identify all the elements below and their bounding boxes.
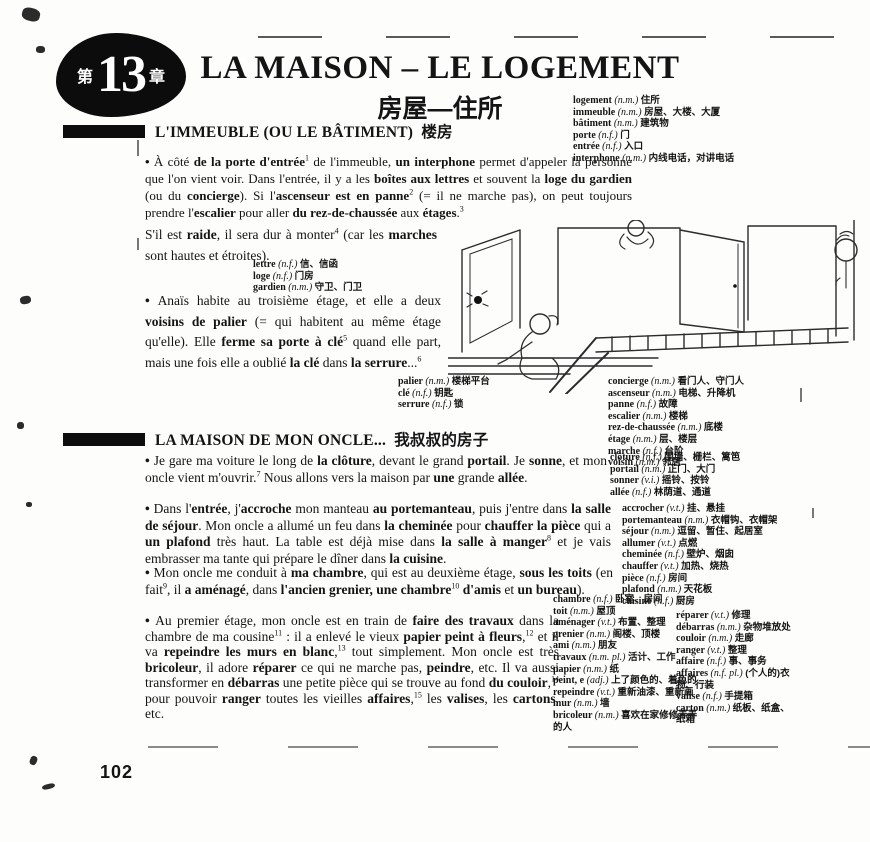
vocab-gender: (n.m.) (574, 698, 600, 709)
vocab-gloss: 走廊 (735, 633, 754, 644)
vocab-gender: (n.m.) (678, 422, 704, 433)
vocab-gender: (n.m.) (706, 703, 732, 714)
vocab-word: logement (573, 95, 614, 106)
vocab-gloss: 整理 (728, 645, 747, 656)
vocab-word: travaux (553, 652, 589, 663)
vocab-gloss: 纸 (610, 664, 620, 675)
heading-cn: 楼房 (421, 124, 452, 141)
text-segment: la cheminée (384, 518, 452, 533)
text-segment: ranger (222, 691, 261, 706)
text-segment: et souvent la (469, 171, 544, 186)
vocab-word: panne (608, 399, 637, 410)
vocab-entry: accrocher (v.t.) 挂、悬挂 (622, 503, 862, 515)
vocab-entry: serrure (n.f.) 锁 (398, 399, 573, 411)
text-segment: escalier (194, 205, 236, 220)
text-segment: ). Si l' (240, 188, 276, 203)
vocab-word: palier (398, 376, 425, 387)
vocab-word: sonner (610, 475, 641, 486)
text-segment: une petite pièce qui se trouve au fond (279, 675, 488, 690)
vocab-entry: entrée (n.f.) 入口 (573, 141, 865, 153)
text-segment: peindre (427, 660, 471, 675)
vocab-gender: (n.f.) (642, 452, 664, 463)
vocab-word: portemanteau (622, 515, 685, 526)
vocab-word: ascenseur (608, 388, 652, 399)
vocab-gender: (n.m.) (708, 633, 734, 644)
scan-noise (36, 46, 45, 53)
vocab-entry: concierge (n.m.) 看门人、守门人 (608, 376, 868, 388)
vocab-gloss: 逗留、暂住、起居室 (677, 526, 763, 537)
vocab-gender: (n.f.) (412, 388, 434, 399)
page-bottom-edge-line (148, 746, 870, 748)
vocab-entry: lettre (n.f.) 信、信函 (253, 259, 438, 271)
vocab-word: allée (610, 487, 632, 498)
text-segment: la salle à manger (441, 534, 547, 549)
vocab-entry: portail (n.m.) 正门、大门 (610, 464, 868, 476)
vocab-entry: réparer (v.t.) 修理 (676, 610, 796, 622)
vocab-gloss: 门房 (295, 271, 314, 282)
vocab-gloss: 层、楼层 (659, 434, 697, 445)
vocab-word: rez-de-chaussée (608, 422, 678, 433)
vocab-word: peint, e (553, 675, 587, 686)
vocab-gloss: 事、事务 (729, 656, 767, 667)
text-segment: . (443, 551, 446, 566)
vocab-gloss: 点燃 (678, 538, 697, 549)
vocab-entry: ranger (v.t.) 整理 (676, 645, 796, 657)
vocab-word: couloir (676, 633, 708, 644)
vocab-gloss: 墙 (600, 698, 610, 709)
vocab-entry: chambre (n.f.) 卧室、房间 (553, 594, 705, 606)
text-segment: affaires (367, 691, 410, 706)
text-segment: très haut. La table est déjà mise dans (211, 534, 442, 549)
vocab-gender: (n.m.) (685, 515, 711, 526)
vocab-gloss: 锁 (454, 399, 464, 410)
vocab-word: pièce (622, 573, 646, 584)
vocab-gloss: 林荫道、通道 (654, 487, 711, 498)
vocab-gender: (n.m.) (651, 526, 677, 537)
vocab-word: affaires (676, 668, 711, 679)
vocab-gender: (n.f.) (602, 141, 624, 152)
text-segment: faire des travaux (412, 613, 513, 628)
vocab-entry: clé (n.f.) 钥匙 (398, 388, 573, 400)
scan-noise (137, 238, 139, 250)
vocab-word: débarras (676, 622, 717, 633)
text-segment: pour aller (236, 205, 293, 220)
text-segment: concierge (187, 188, 240, 203)
chapter-number: 13 (97, 49, 145, 101)
vocab-gender: (adj.) (587, 675, 611, 686)
vocab-gender: (n.f.) (637, 399, 659, 410)
vocab-entry: loge (n.f.) 门房 (253, 271, 438, 283)
vocab-gender: (n.f.) (702, 691, 724, 702)
vocab-gloss: 入口 (624, 141, 643, 152)
text-segment: ferme sa porte à clé (221, 334, 343, 349)
vocab-gender: (n.m.) (614, 118, 640, 129)
vocab-gloss: 活计、工作 (628, 652, 676, 663)
vocab-gender: (n.m.) (652, 388, 678, 399)
text-segment: les (422, 691, 447, 706)
vocab-gender: (v.t.) (598, 617, 619, 628)
vocab-gloss: 围墙、栅栏、篱笆 (664, 452, 740, 463)
paragraph-anais: • Anaïs habite au troisième étage, et el… (145, 291, 441, 373)
vocab-gender: (v.t.) (707, 645, 728, 656)
text-segment: d'amis (463, 582, 501, 597)
text-segment: (car les (339, 227, 389, 242)
vocab-gloss: 手提箱 (724, 691, 753, 702)
vocab-word: aménager (553, 617, 598, 628)
text-segment: mon manteau (292, 501, 373, 516)
text-segment: du couloir (489, 675, 548, 690)
vocab-entry: affaire (n.f.) 事、事务 (676, 656, 796, 668)
vocab-entry: panne (n.f.) 故障 (608, 399, 868, 411)
text-segment: , j' (227, 501, 240, 516)
vocab-gender: (n.f.) (593, 594, 615, 605)
vocab-gloss: 电梯、升降机 (678, 388, 735, 399)
scan-noise (17, 422, 24, 429)
text-segment: a aménagé (185, 582, 246, 597)
text-segment: sonne (529, 453, 562, 468)
text-segment: . Je (506, 453, 529, 468)
text-segment: : il a enlevé le vieux (282, 629, 403, 644)
vocab-word: entrée (573, 141, 602, 152)
text-segment: • (145, 501, 154, 516)
vocab-word: chambre (553, 594, 593, 605)
heading-fr: LA MAISON DE MON ONCLE... (155, 432, 386, 449)
vocab-list-accrocher: accrocher (v.t.) 挂、悬挂portemanteau (n.m.)… (622, 503, 862, 607)
vocab-entry: ascenseur (n.m.) 电梯、升降机 (608, 388, 868, 400)
text-segment: toutes les vieilles (261, 691, 367, 706)
text-segment: aux (397, 205, 422, 220)
text-segment: • (145, 154, 154, 169)
vocab-gloss: 看门人、守门人 (677, 376, 744, 387)
vocab-gloss: 杂物堆放处 (743, 622, 791, 633)
text-segment: ce qui ne marche pas, (297, 660, 427, 675)
vocab-word: chauffer (622, 561, 660, 572)
vocab-gender: (v.i.) (641, 475, 662, 486)
heading-bar (63, 125, 145, 138)
text-segment: ... (407, 355, 417, 370)
vocab-word: clôture (610, 452, 642, 463)
text-segment: (ou du (145, 188, 187, 203)
vocab-gender: (v.t.) (711, 610, 732, 621)
text-segment: ascenseur est en panne (276, 188, 410, 203)
text-segment: loge du gardien (544, 171, 632, 186)
section-heading-immeuble: L'IMMEUBLE (OU LE BÂTIMENT) 楼房 (63, 120, 453, 142)
footnote-ref: 3 (460, 205, 464, 214)
vocab-gloss: 屋顶 (596, 606, 615, 617)
text-segment: voisins de palier (145, 314, 247, 329)
vocab-word: affaire (676, 656, 707, 667)
vocab-entry: étage (n.m.) 层、楼层 (608, 434, 868, 446)
vocab-gender: (n.m.) (570, 606, 596, 617)
vocab-gloss: 阁楼、顶楼 (613, 629, 661, 640)
text-segment: , les (484, 691, 512, 706)
vocab-gloss: 挂、悬挂 (687, 503, 725, 514)
vocab-word: étage (608, 434, 633, 445)
vocab-gender: (n.m.) (641, 464, 667, 475)
vocab-gloss: 修理 (732, 610, 751, 621)
vocab-word: escalier (608, 411, 643, 422)
text-segment: accroche (241, 501, 292, 516)
vocab-gloss: 朋友 (598, 640, 617, 651)
text-segment: Nous allons vers la maison par (261, 470, 434, 485)
vocab-gloss: 布置、整理 (618, 617, 666, 628)
vocab-gloss: 钥匙 (434, 388, 453, 399)
vocab-gender: (n.f.) (707, 656, 729, 667)
text-segment: qui a (580, 518, 611, 533)
vocab-gloss: 壁炉、烟囱 (686, 549, 734, 560)
text-segment: tout simplement. Mon oncle est très (346, 644, 559, 659)
text-segment: de la porte d'entrée (194, 154, 305, 169)
vocab-word: portail (610, 464, 641, 475)
footnote-ref: 11 (274, 628, 282, 637)
scan-noise (21, 6, 42, 23)
vocab-gloss: 故障 (659, 399, 678, 410)
footnote-ref: 15 (414, 690, 422, 699)
chapter-prefix: 第 (77, 63, 93, 87)
vocab-gender: (n.f.) (665, 549, 687, 560)
text-segment: étages (423, 205, 457, 220)
vocab-entry: sonner (v.i.) 摇铃、按铃 (610, 475, 868, 487)
vocab-word: valise (676, 691, 702, 702)
text-segment: . (524, 470, 527, 485)
vocab-gender: (n.m.) (633, 434, 659, 445)
vocab-gender: (n.f.) (273, 271, 295, 282)
vocab-word: concierge (608, 376, 651, 387)
text-segment: grande (454, 470, 497, 485)
scan-noise (137, 140, 139, 156)
text-segment: portail (467, 453, 506, 468)
vocab-gloss: 楼梯平台 (452, 376, 490, 387)
vocab-gender: (v.t.) (660, 561, 681, 572)
vocab-gender: (n.m.) (595, 710, 621, 721)
vocab-gloss: 摇铃、按铃 (662, 475, 710, 486)
vocab-word: lettre (253, 259, 278, 270)
text-segment: débarras (228, 675, 280, 690)
vocab-gender: (n.f.) (598, 130, 620, 141)
text-segment: • (145, 613, 155, 628)
section-heading-maison-oncle: LA MAISON DE MON ONCLE... 我叔叔的房子 (63, 428, 488, 450)
text-segment: • (145, 565, 154, 580)
text-segment: chauffer la pièce (485, 518, 581, 533)
text-segment: entrée (191, 501, 227, 516)
vocab-gloss: 信、信函 (300, 259, 338, 270)
vocab-word: accrocher (622, 503, 666, 514)
text-segment: , puis j'entre dans (472, 501, 571, 516)
vocab-word: loge (253, 271, 273, 282)
vocab-gloss: 门 (620, 130, 630, 141)
text-segment: la serrure (351, 355, 407, 370)
vocab-gender: (n.f.) (632, 487, 654, 498)
vocab-entry: logement (n.m.) 住所 (573, 95, 865, 107)
text-segment: dans (319, 355, 351, 370)
vocab-entry: immeuble (n.m.) 房屋、大楼、大厦 (573, 107, 865, 119)
vocab-gender: (n.m.) (586, 629, 612, 640)
vocab-word: repeindre (553, 687, 597, 698)
staircase-illustration (448, 220, 866, 394)
vocab-entry: allumer (v.t.) 点燃 (622, 538, 862, 550)
vocab-entry: allée (n.f.) 林荫道、通道 (610, 487, 868, 499)
text-segment: allée (498, 470, 524, 485)
vocab-word: mur (553, 698, 574, 709)
vocab-entry: chauffer (v.t.) 加热、烧热 (622, 561, 862, 573)
vocab-entry: valise (n.f.) 手提箱 (676, 691, 796, 703)
vocab-word: immeuble (573, 107, 618, 118)
vocab-gender: (n.m.) (425, 376, 451, 387)
vocab-gloss: 正门、大门 (668, 464, 716, 475)
vocab-gender: (n.f.) (646, 573, 668, 584)
vocab-word: clé (398, 388, 412, 399)
text-segment: , qui est au deuxième étage, (363, 565, 519, 580)
vocab-gloss: 房屋、大楼、大厦 (644, 107, 720, 118)
heading-fr: L'IMMEUBLE (OU LE BÂTIMENT) (155, 124, 413, 141)
vocab-word: allumer (622, 538, 658, 549)
text-segment: valises (447, 691, 485, 706)
vocab-gender: (n.f.) (432, 399, 454, 410)
text-segment: cartons (513, 691, 556, 706)
text-segment: papier peint à fleurs (403, 629, 522, 644)
text-segment: Anaïs habite au troisième étage, et elle… (158, 293, 441, 308)
text-segment: la clôture (317, 453, 372, 468)
text-segment: S'il est (145, 227, 187, 242)
paragraph-interphone: • À côté de la porte d'entrée1 de l'imme… (145, 153, 632, 221)
scan-noise (42, 783, 56, 791)
text-segment: , il sera dur à monter (217, 227, 335, 242)
text-segment: bricoleur (145, 660, 198, 675)
scan-noise (26, 502, 32, 507)
text-segment: et (501, 582, 518, 597)
scan-noise (29, 755, 39, 766)
vocab-gloss: 底楼 (704, 422, 723, 433)
text-segment: sont hautes et étroites). (145, 248, 269, 263)
text-segment: marches (388, 227, 437, 242)
vocab-entry: clôture (n.f.) 围墙、栅栏、篱笆 (610, 452, 868, 464)
vocab-gloss: 内线电话，对讲电话 (649, 153, 735, 164)
text-segment: ma chambre (291, 565, 364, 580)
vocab-gloss: 楼梯 (669, 411, 688, 422)
text-segment: sous les toits (520, 565, 592, 580)
vocab-gloss: 卧室、房间 (615, 594, 663, 605)
vocab-list-palier: palier (n.m.) 楼梯平台clé (n.f.) 钥匙serrure (… (398, 376, 573, 411)
chapter-suffix: 章 (149, 63, 165, 87)
vocab-word: papier (553, 664, 583, 675)
vocab-gender: (n.m.) (651, 376, 677, 387)
footnote-ref: 6 (417, 354, 421, 363)
vocab-gloss: 建筑物 (640, 118, 669, 129)
vocab-entry: palier (n.m.) 楼梯平台 (398, 376, 573, 388)
text-segment: une (433, 470, 454, 485)
vocab-list-lettre: lettre (n.f.) 信、信函loge (n.f.) 门房gardien … (253, 259, 438, 294)
text-segment: pour (452, 518, 484, 533)
vocab-word: ranger (676, 645, 707, 656)
text-segment: la clé (290, 355, 320, 370)
page-title: LA MAISON – LE LOGEMENT (200, 50, 680, 87)
text-segment: un plafond (145, 534, 211, 549)
vocab-entry: débarras (n.m.) 杂物堆放处 (676, 622, 796, 634)
textbook-page: 第 13 章 LA MAISON – LE LOGEMENT 房屋—住所 log… (0, 0, 870, 842)
text-segment: un interphone (396, 154, 476, 169)
vocab-gender: (v.t.) (597, 687, 618, 698)
vocab-entry: bâtiment (n.m.) 建筑物 (573, 118, 865, 130)
vocab-gender: (n.m.) (717, 622, 743, 633)
vocab-entry: rez-de-chaussée (n.m.) 底楼 (608, 422, 868, 434)
vocab-entry: séjour (n.m.) 逗留、暂住、起居室 (622, 526, 862, 538)
vocab-gender: (n.m.) (614, 95, 640, 106)
vocab-word: porte (573, 130, 598, 141)
heading-bar (63, 433, 145, 446)
paragraph-entree: • Dans l'entrée, j'accroche mon manteau … (145, 501, 611, 567)
scan-noise (19, 295, 31, 305)
vocab-gender: (v.t.) (666, 503, 687, 514)
vocab-list-reparer: réparer (v.t.) 修理débarras (n.m.) 杂物堆放处co… (676, 610, 796, 726)
vocab-word: séjour (622, 526, 651, 537)
text-segment: repeindre les murs en blanc (164, 644, 334, 659)
vocab-word: cheminée (622, 549, 665, 560)
text-segment: Au premier étage, mon oncle est en train… (155, 613, 412, 628)
text-segment: boîtes aux lettres (374, 171, 469, 186)
vocab-entry: pièce (n.f.) 房间 (622, 573, 862, 585)
vocab-gender: (n.m. pl.) (589, 652, 628, 663)
vocab-word: bricoleur (553, 710, 595, 721)
text-segment: pour pouvoir (145, 691, 222, 706)
text-segment: au portemanteau (373, 501, 472, 516)
text-segment: , dans (246, 582, 281, 597)
paragraph-cloture: • Je gare ma voiture le long de la clôtu… (145, 453, 607, 486)
vocab-gloss: 加热、烧热 (681, 561, 729, 572)
vocab-gender: (n.f.) (278, 259, 300, 270)
vocab-entry: porte (n.f.) 门 (573, 130, 865, 142)
vocab-gender: (n.m.) (583, 664, 609, 675)
text-segment: , devant le grand (372, 453, 468, 468)
text-segment: la cuisine (389, 551, 443, 566)
text-segment: raide (187, 227, 217, 242)
text-segment: Dans l' (154, 501, 192, 516)
vocab-word: serrure (398, 399, 432, 410)
page-number: 102 (100, 762, 133, 783)
vocab-entry: cheminée (n.f.) 壁炉、烟囱 (622, 549, 862, 561)
text-segment: du rez-de-chaussée (292, 205, 397, 220)
text-segment: , il adore (198, 660, 252, 675)
paragraph-chambre: • Mon oncle me conduit à ma chambre, qui… (145, 565, 613, 598)
page-top-edge-line (258, 36, 870, 38)
text-segment: , il (167, 582, 185, 597)
footnote-ref: 13 (338, 644, 346, 653)
vocab-word: bâtiment (573, 118, 614, 129)
vocab-entry: carton (n.m.) 纸板、纸盒、纸箱 (676, 703, 796, 726)
text-segment: . Mon oncle a allumé un feu dans (198, 518, 384, 533)
heading-text: LA MAISON DE MON ONCLE... 我叔叔的房子 (155, 428, 488, 450)
vocab-gloss: 住所 (641, 95, 660, 106)
vocab-gender: (n.m.) (618, 107, 644, 118)
vocab-entry: portemanteau (n.m.) 衣帽钩、衣帽架 (622, 515, 862, 527)
text-segment: Je gare ma voiture le long de (154, 453, 317, 468)
vocab-entry: couloir (n.m.) 走廊 (676, 633, 796, 645)
vocab-gloss: 衣帽钩、衣帽架 (711, 515, 778, 526)
chapter-badge: 第 13 章 (56, 33, 186, 117)
heading-cn: 我叔叔的房子 (394, 432, 488, 449)
text-segment: l'ancien grenier, une chambre (281, 582, 452, 597)
text-segment: • (145, 453, 154, 468)
vocab-entry: escalier (n.m.) 楼梯 (608, 411, 868, 423)
vocab-gender: (n.m.) (572, 640, 598, 651)
text-segment: • (145, 293, 158, 308)
text-segment: de l'immeuble, (309, 154, 396, 169)
vocab-word: réparer (676, 610, 711, 621)
text-segment: Mon oncle me conduit à (154, 565, 291, 580)
vocab-gender: (v.t.) (658, 538, 679, 549)
paragraph-travaux: • Au premier étage, mon oncle est en tra… (145, 613, 559, 722)
vocab-gender: (n.f. pl.) (711, 668, 746, 679)
text-segment: À côté (154, 154, 194, 169)
